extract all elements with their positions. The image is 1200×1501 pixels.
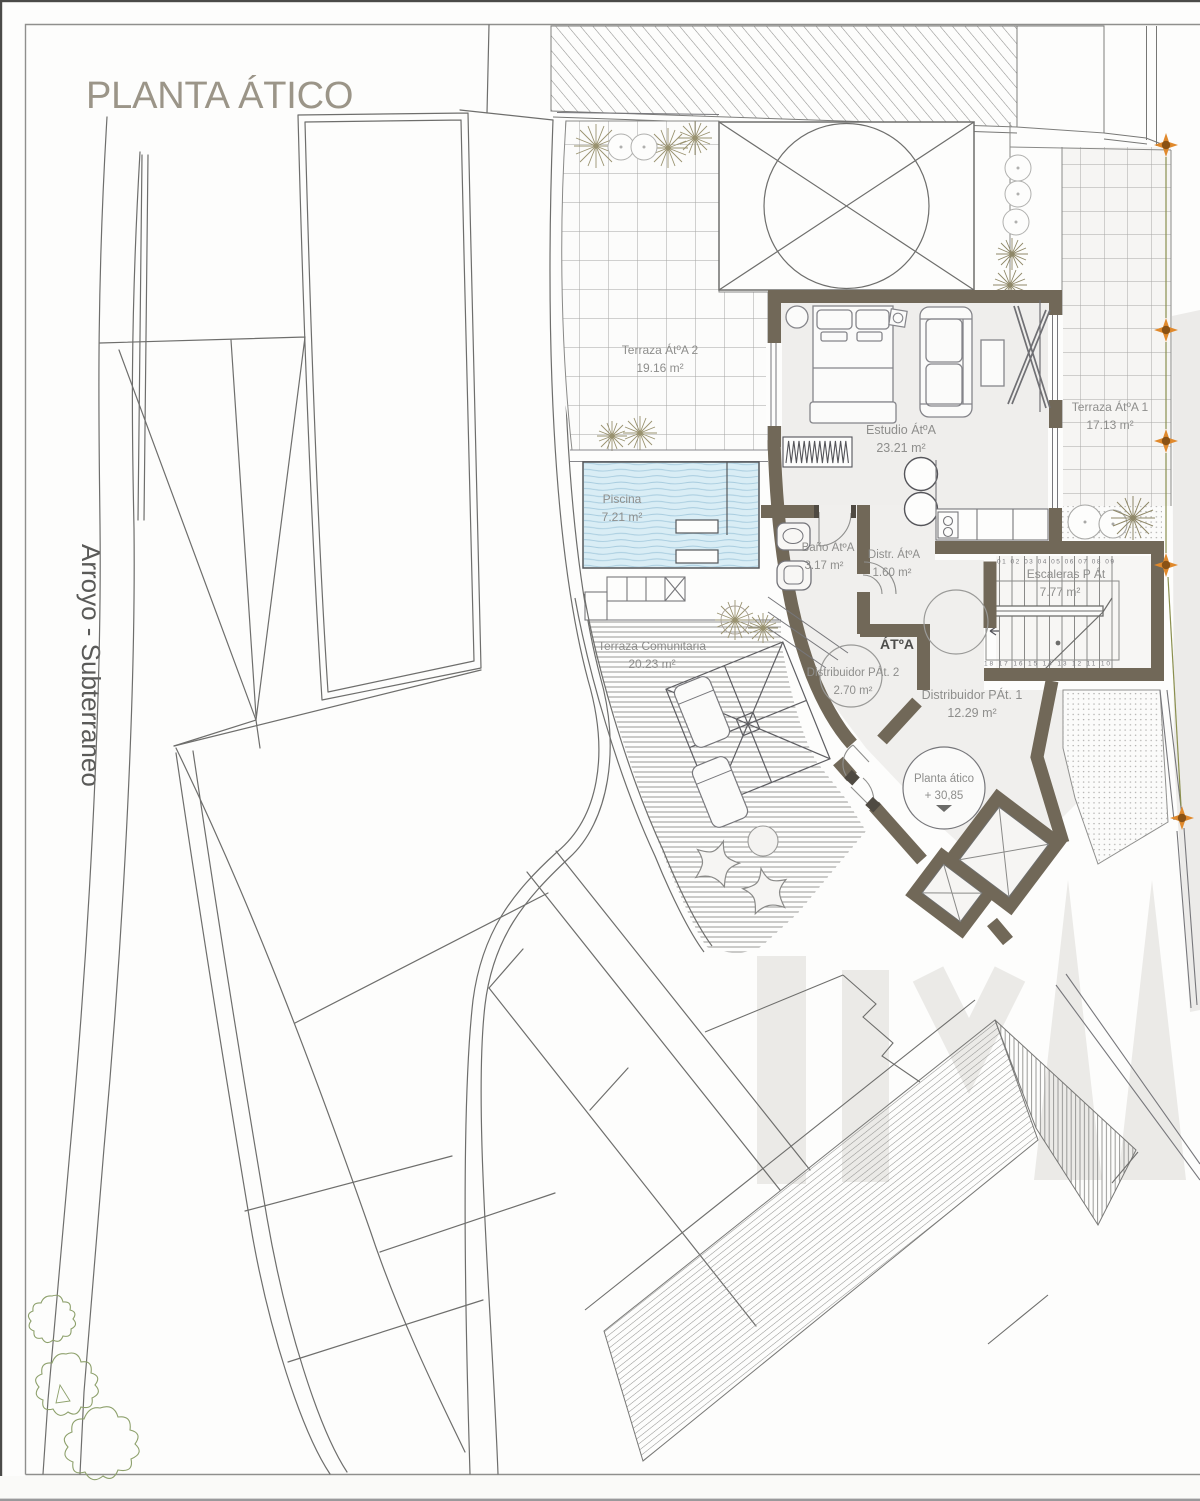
- svg-text:3.17 m²: 3.17 m²: [805, 560, 844, 572]
- svg-text:Baño ÁtºA: Baño ÁtºA: [802, 541, 855, 554]
- svg-text:Terraza Comunitaria: Terraza Comunitaria: [598, 639, 706, 653]
- svg-text:Terraza ÁtºA 2: Terraza ÁtºA 2: [622, 342, 699, 357]
- svg-text:+ 30,85: + 30,85: [925, 790, 964, 802]
- svg-text:Distr. ÁtºA: Distr. ÁtºA: [868, 548, 920, 561]
- svg-text:20.23 m²: 20.23 m²: [628, 657, 675, 671]
- svg-text:7.77 m²: 7.77 m²: [1040, 585, 1081, 599]
- svg-text:PLANTA ÁTICO: PLANTA ÁTICO: [86, 74, 353, 117]
- svg-text:Terraza ÁtºA 1: Terraza ÁtºA 1: [1072, 399, 1149, 414]
- svg-text:Distribuidor PÁt. 2: Distribuidor PÁt. 2: [807, 666, 900, 679]
- svg-text:ÁTºA: ÁTºA: [880, 636, 914, 652]
- svg-text:7.21 m²: 7.21 m²: [602, 510, 643, 524]
- svg-text:Distribuidor PÁt. 1: Distribuidor PÁt. 1: [922, 687, 1023, 702]
- svg-text:12.29 m²: 12.29 m²: [947, 706, 996, 720]
- svg-text:Arroyo - Subterraneo: Arroyo - Subterraneo: [76, 544, 106, 787]
- svg-text:23.21 m²: 23.21 m²: [876, 441, 925, 455]
- svg-text:Escaleras P Át: Escaleras P Át: [1027, 566, 1106, 581]
- svg-text:Planta ático: Planta ático: [914, 773, 974, 785]
- svg-text:19.16 m²: 19.16 m²: [636, 361, 683, 375]
- svg-text:1.60 m²: 1.60 m²: [873, 567, 912, 579]
- svg-text:Piscina: Piscina: [603, 492, 642, 506]
- svg-text:Estudio ÁtºA: Estudio ÁtºA: [866, 422, 937, 437]
- svg-text:2.70 m²: 2.70 m²: [834, 685, 873, 697]
- svg-text:17.13 m²: 17.13 m²: [1086, 418, 1133, 432]
